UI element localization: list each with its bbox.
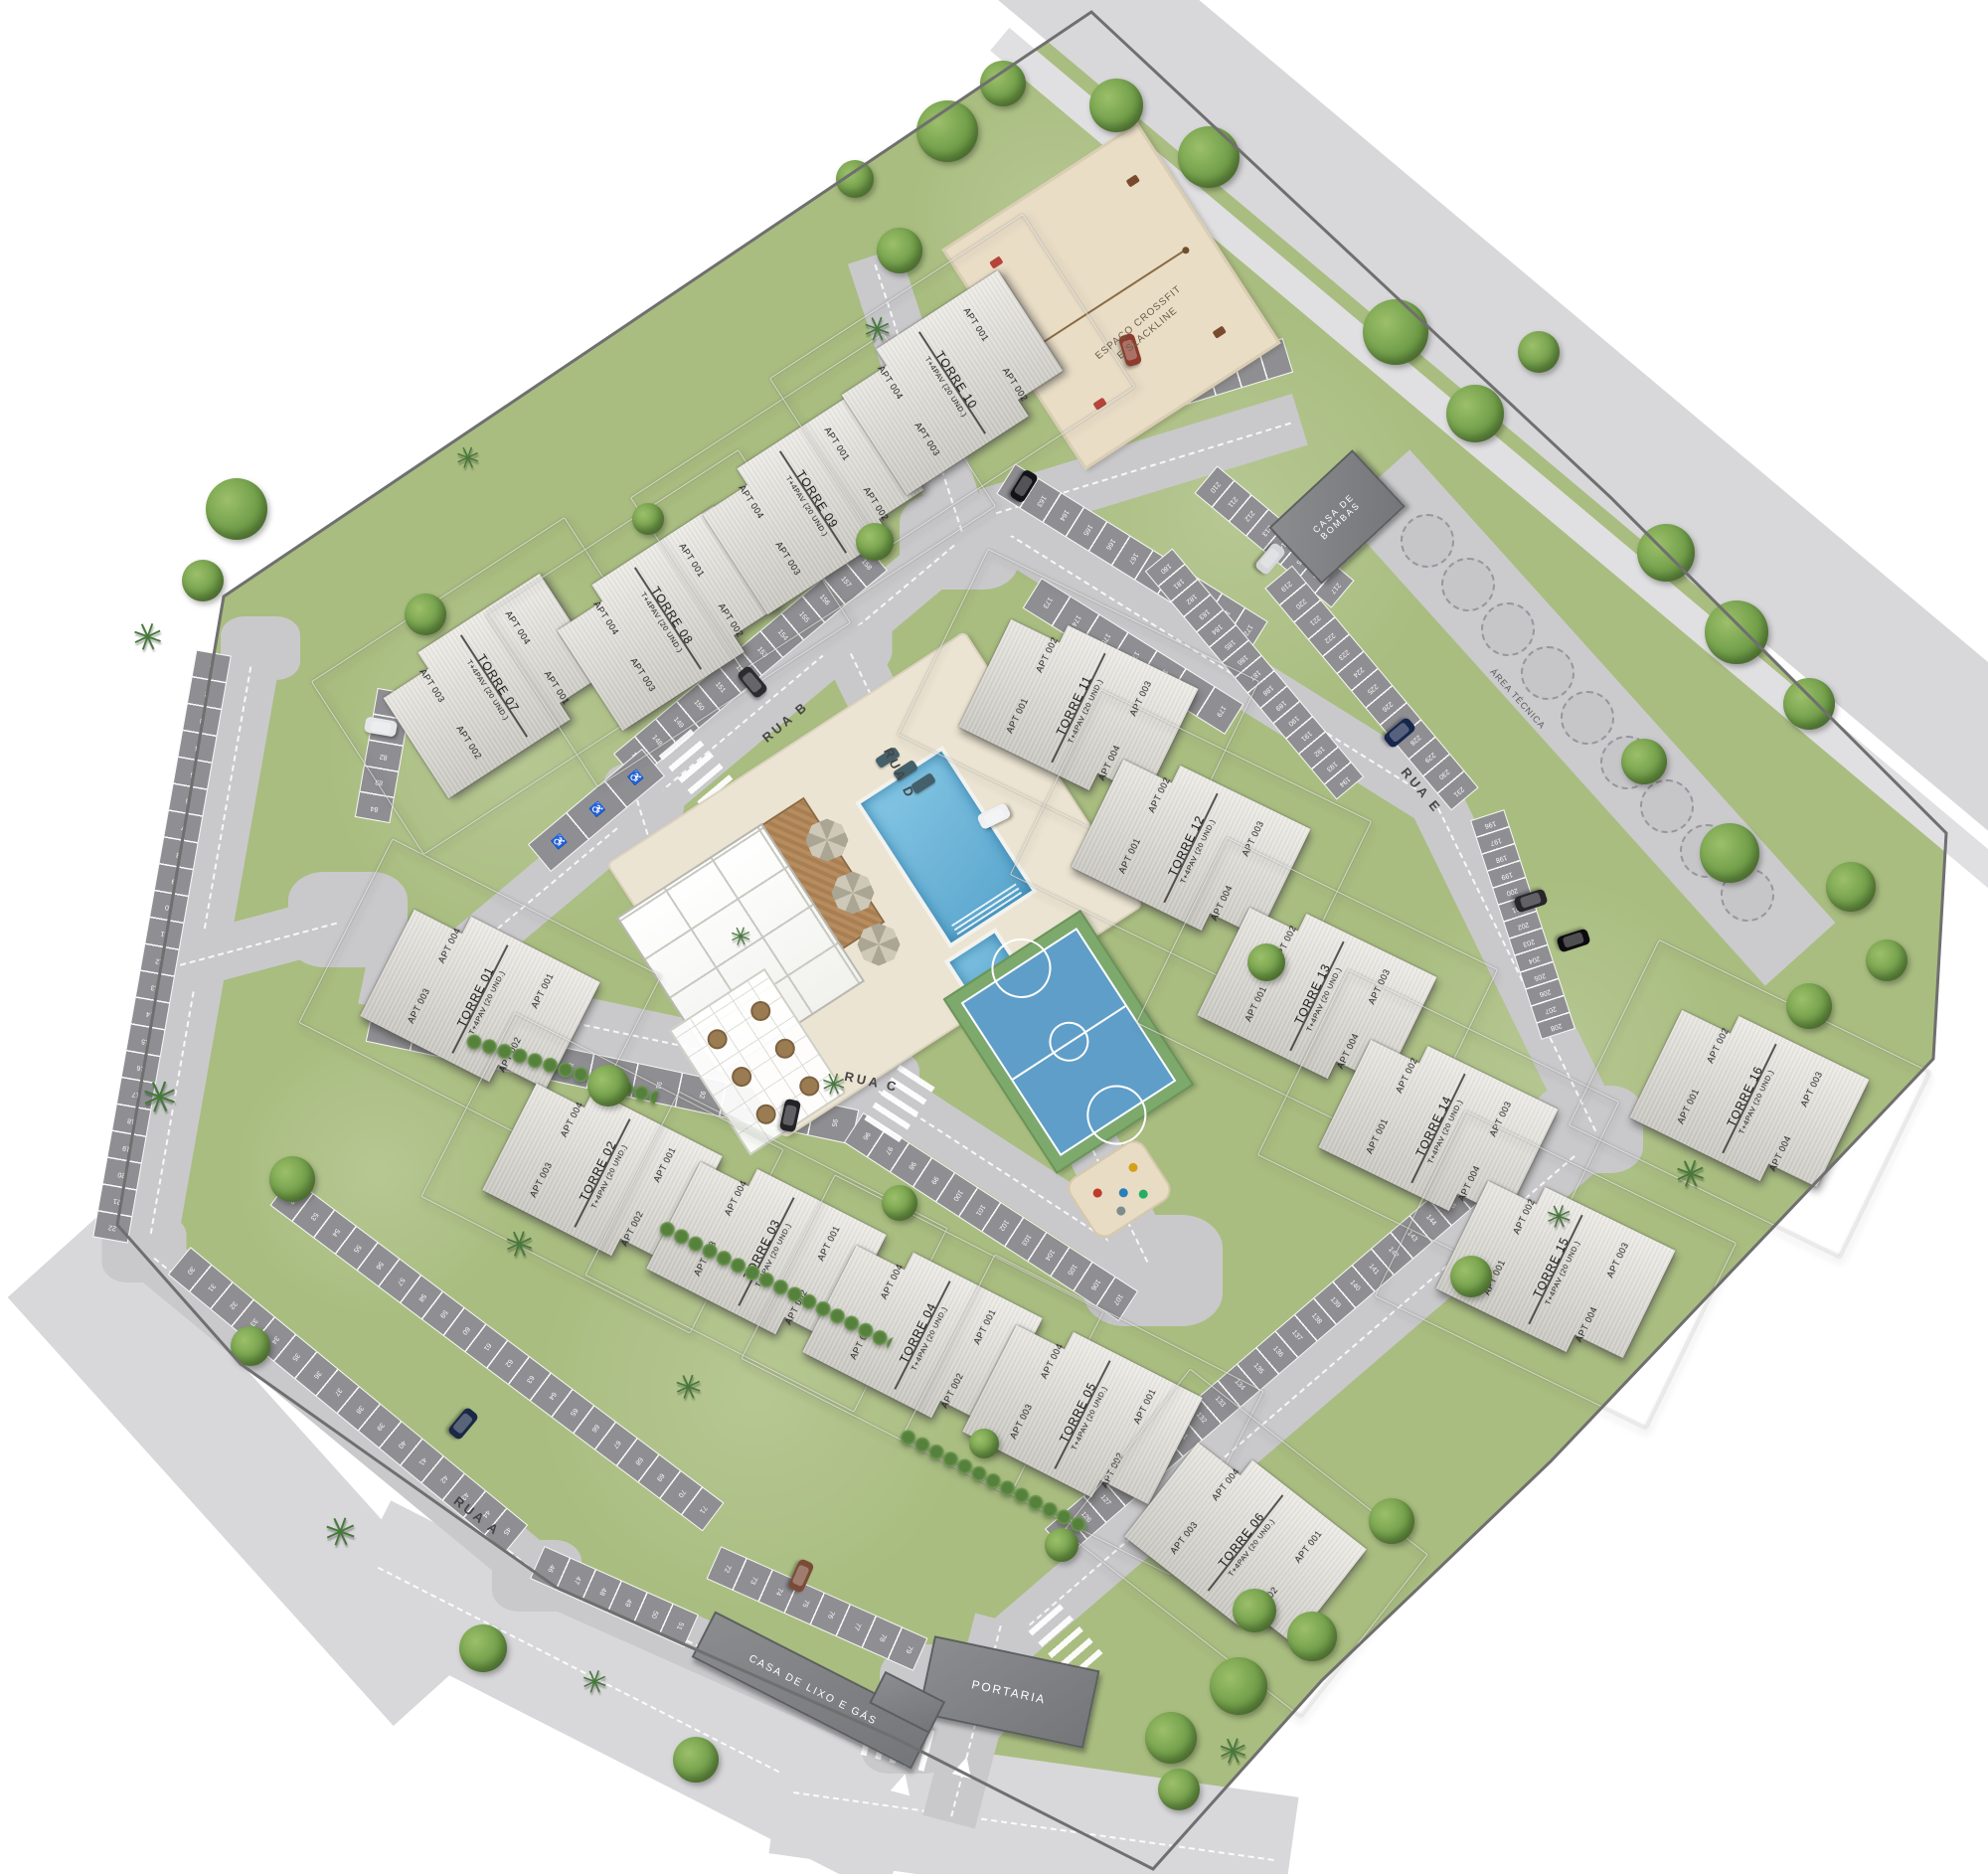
- road-label-rua-c: RUA C: [843, 1069, 901, 1095]
- road-label-rua-a: RUA A: [451, 1493, 504, 1539]
- road-label-rua-e: RUA E: [1399, 765, 1445, 816]
- area-tecnica-label: ÁREA TÉCNICA: [1487, 666, 1548, 732]
- espaco-crossfit-label: ESPAÇO CROSSFIT E SLACKLINE: [1092, 283, 1193, 374]
- road-label-rua-d: RUA D: [881, 746, 918, 802]
- site-plan: 1234567891011121314151617181920212230313…: [0, 0, 1988, 1874]
- labels-layer: RUA A RUA B RUA C RUA D RUA E ESPAÇO CRO…: [0, 0, 1988, 1874]
- road-label-rua-b: RUA B: [759, 698, 811, 745]
